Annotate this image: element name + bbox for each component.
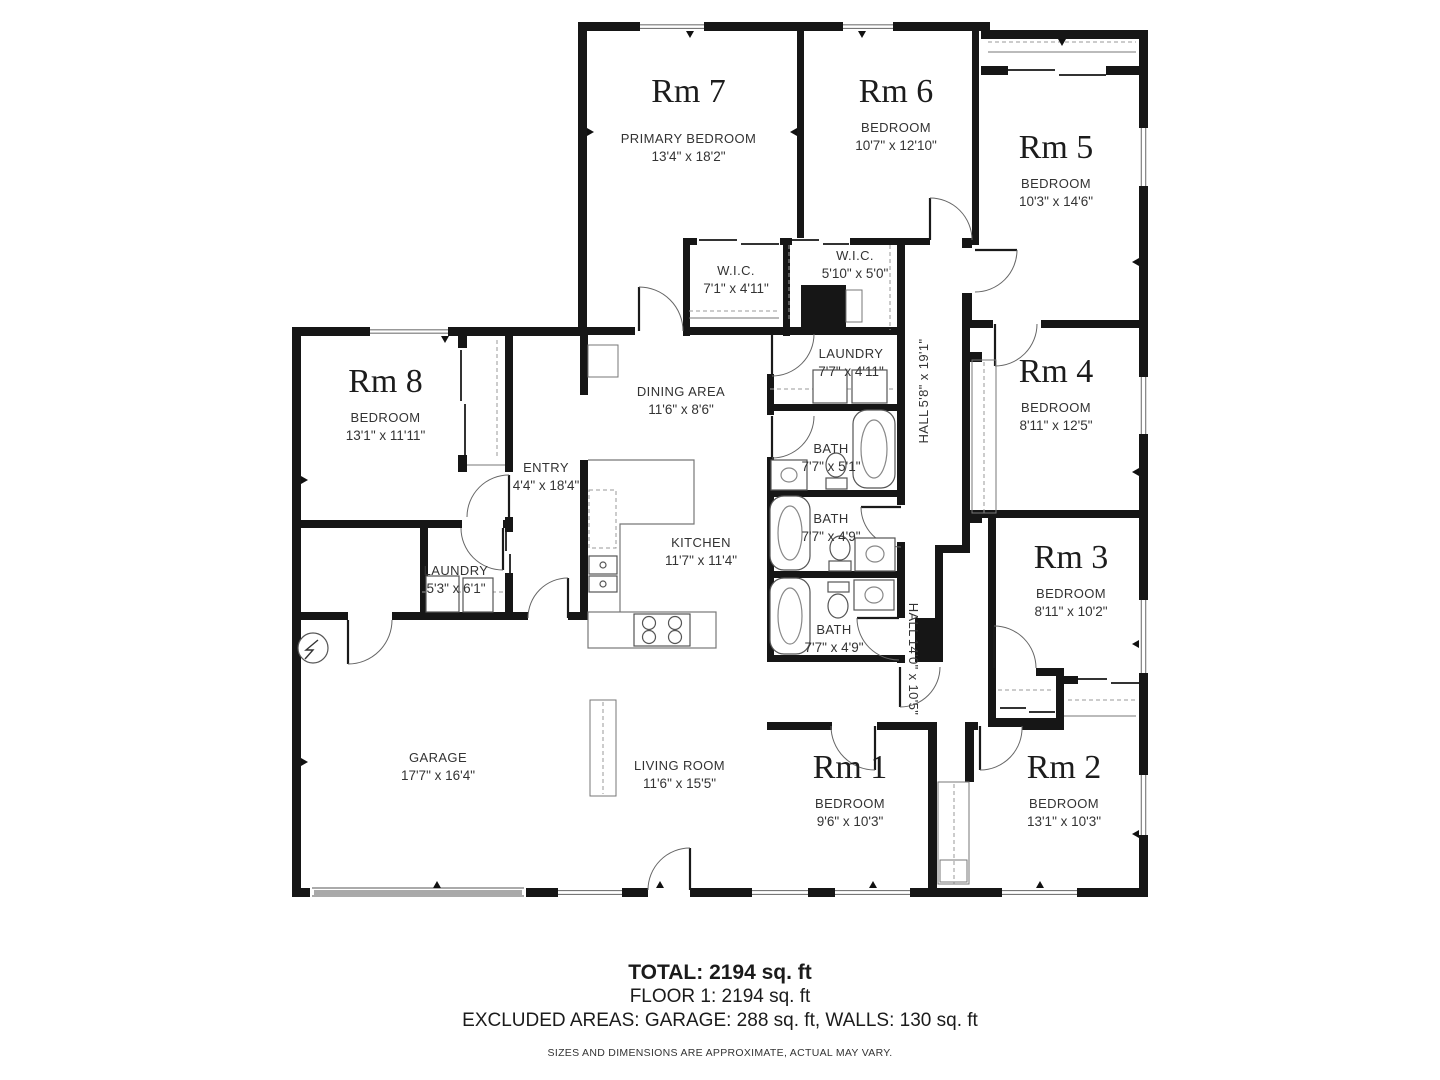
toilet-bowl [828, 594, 848, 618]
room-title: Rm 7 [556, 72, 821, 111]
room-type: BEDROOM [972, 176, 1140, 191]
room-dims: 11'6" x 8'6" [592, 402, 770, 417]
room-dims: 13'1" x 10'3" [983, 814, 1145, 829]
room-dims: 7'1" x 4'11" [682, 281, 790, 296]
room-type: HALL [906, 603, 921, 637]
room-dims: 11'7" x 11'4" [612, 553, 790, 568]
area-summary: TOTAL: 2194 sq. ft FLOOR 1: 2194 sq. ft … [0, 960, 1440, 1059]
room-dims: 17'7" x 16'4" [352, 768, 524, 783]
room-title: Rm 4 [972, 352, 1140, 391]
room-type: BEDROOM [996, 586, 1146, 601]
room-type: BATH [780, 441, 882, 456]
room-dims: 9'6" x 10'3" [776, 814, 924, 829]
toilet-tank [829, 561, 851, 571]
room-type: BATH [783, 622, 885, 637]
room-title: Rm 3 [996, 538, 1146, 577]
room-label-wic2: W.I.C. 5'10" x 5'0" [802, 248, 908, 281]
room-dims: 4'4" x 18'4" [480, 478, 612, 493]
room-label-bath1: BATH 7'7" x 5'1" [780, 441, 882, 474]
room-type: LAUNDRY [792, 346, 910, 361]
room-type: W.I.C. [802, 248, 908, 263]
room-type: KITCHEN [612, 535, 790, 550]
kitchen-sink [589, 576, 617, 592]
total-area: TOTAL: 2194 sq. ft [0, 960, 1440, 985]
room-label-dining: DINING AREA 11'6" x 8'6" [592, 384, 770, 417]
room-dims: 5'3" x 6'1" [397, 581, 515, 596]
room-dims: 11'6" x 15'5" [592, 776, 767, 791]
room-type: GARAGE [352, 750, 524, 765]
room-type: BEDROOM [972, 400, 1140, 415]
water-heater-icon [298, 633, 328, 663]
room-title: Rm 5 [972, 128, 1140, 167]
toilet-tank [826, 478, 847, 489]
room-label-laundry-garage: LAUNDRY 5'3" x 6'1" [397, 563, 515, 596]
room-dims: 13'1" x 11'11" [308, 428, 463, 443]
room-label-wic1: W.I.C. 7'1" x 4'11" [682, 263, 790, 296]
room-dims: 7'7" x 4'11" [792, 364, 910, 379]
room-label-rm4: Rm 4 BEDROOM 8'11" x 12'5" [972, 352, 1140, 433]
toilet-tank [828, 582, 849, 592]
room-label-bath3: BATH 7'7" x 4'9" [783, 622, 885, 655]
floor-plan-page: Rm 7 PRIMARY BEDROOM 13'4" x 18'2" Rm 6 … [0, 0, 1440, 1080]
room-type: HALL [916, 409, 931, 443]
room-label-living: LIVING ROOM 11'6" x 15'5" [592, 758, 767, 791]
room-label-bath2: BATH 7'7" x 4'9" [780, 511, 882, 544]
disclaimer: SIZES AND DIMENSIONS ARE APPROXIMATE, AC… [0, 1047, 1440, 1059]
room-type: LIVING ROOM [592, 758, 767, 773]
room-dims: 7'7" x 5'1" [780, 459, 882, 474]
room-dims: 8'11" x 10'2" [996, 604, 1146, 619]
room-label-rm1: Rm 1 BEDROOM 9'6" x 10'3" [776, 748, 924, 829]
room-label-rm5: Rm 5 BEDROOM 10'3" x 14'6" [972, 128, 1140, 209]
room-dims: 10'3" x 14'6" [972, 194, 1140, 209]
room-dims: 14'0" x 10'5" [906, 639, 921, 716]
room-type: BEDROOM [776, 796, 924, 811]
room-type: LAUNDRY [397, 563, 515, 578]
room-dims: 8'11" x 12'5" [972, 418, 1140, 433]
room-label-kitchen: KITCHEN 11'7" x 11'4" [612, 535, 790, 568]
stove [634, 614, 690, 646]
room-label-hall-main: HALL 5'8" x 19'1" [916, 313, 950, 469]
excluded-areas: EXCLUDED AREAS: GARAGE: 288 sq. ft, WALL… [0, 1009, 1440, 1033]
room-label-rm6: Rm 6 BEDROOM 10'7" x 12'10" [810, 72, 982, 153]
room-type: BEDROOM [983, 796, 1145, 811]
room-type: DINING AREA [592, 384, 770, 399]
room-label-laundry-main: LAUNDRY 7'7" x 4'11" [792, 346, 910, 379]
room-label-rm7: Rm 7 PRIMARY BEDROOM 13'4" x 18'2" [556, 72, 821, 164]
room-title: Rm 8 [308, 362, 463, 401]
room-dims: 10'7" x 12'10" [810, 138, 982, 153]
room-dims: 7'7" x 4'9" [783, 640, 885, 655]
room-title: Rm 2 [983, 748, 1145, 787]
room-dims: 5'8" x 19'1" [916, 339, 931, 408]
room-label-entry: ENTRY 4'4" x 18'4" [480, 460, 612, 493]
room-title: Rm 1 [776, 748, 924, 787]
room-label-rm2: Rm 2 BEDROOM 13'1" x 10'3" [983, 748, 1145, 829]
room-label-rm8: Rm 8 BEDROOM 13'1" x 11'11" [308, 362, 463, 443]
room-label-hall-back: HALL 14'0" x 10'5" [887, 581, 921, 737]
room-title: Rm 6 [810, 72, 982, 111]
room-dims: 13'4" x 18'2" [556, 149, 821, 164]
room-type: BATH [780, 511, 882, 526]
room-type: PRIMARY BEDROOM [556, 131, 821, 146]
room-label-garage: GARAGE 17'7" x 16'4" [352, 750, 524, 783]
room-type: BEDROOM [308, 410, 463, 425]
room-type: W.I.C. [682, 263, 790, 278]
room-type: ENTRY [480, 460, 612, 475]
room-label-rm3: Rm 3 BEDROOM 8'11" x 10'2" [996, 538, 1146, 619]
room-dims: 7'7" x 4'9" [780, 529, 882, 544]
room-type: BEDROOM [810, 120, 982, 135]
room-dims: 5'10" x 5'0" [802, 266, 908, 281]
floor-area: FLOOR 1: 2194 sq. ft [0, 985, 1440, 1009]
